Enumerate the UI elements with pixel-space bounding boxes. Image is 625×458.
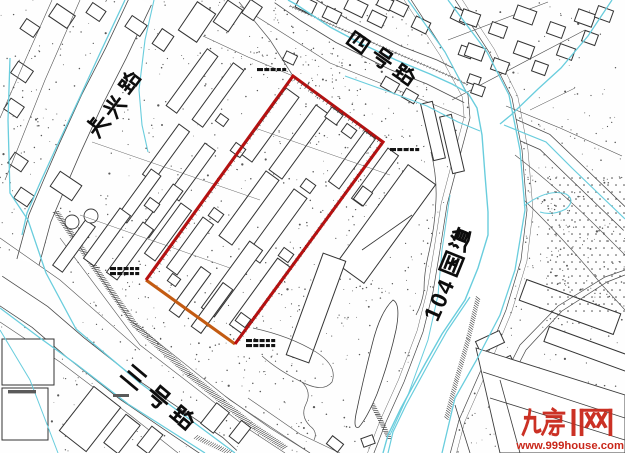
svg-text:www.999house.com: www.999house.com: [515, 440, 624, 452]
